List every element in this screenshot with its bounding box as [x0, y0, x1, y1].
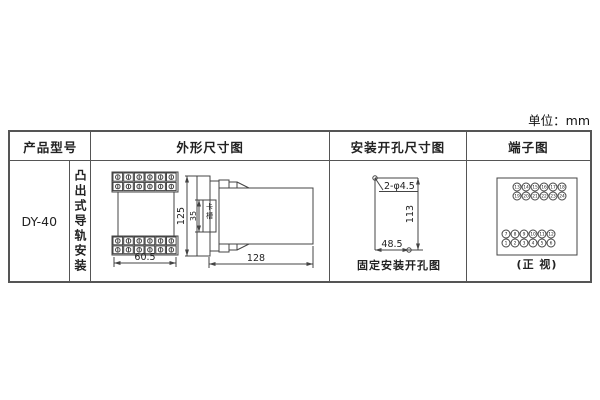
cell-terminal-diagram: 131415161718192021222324 789101112123456…	[467, 161, 590, 282]
mounting-type-text: 凸出式导轨安装	[70, 169, 90, 274]
header-terminal: 端子图	[467, 132, 590, 160]
cell-install-drawing: 2-φ4.5 113 48.5 固定安装开孔图	[330, 161, 467, 282]
cell-outline-drawing: 60.5 125 35 卡槽 128	[91, 161, 329, 282]
page: { "page": { "unit_label": "单位：mm" }, "ta…	[0, 0, 600, 400]
svg-text:1: 1	[504, 241, 507, 247]
dim-width-label: 60.5	[135, 252, 156, 263]
svg-text:22: 22	[541, 194, 547, 200]
svg-text:9: 9	[522, 232, 525, 238]
terminal-group-top: 131415161718192021222324	[513, 183, 566, 200]
svg-text:11: 11	[539, 232, 545, 238]
product-model-text: DY-40	[22, 214, 58, 229]
svg-text:8: 8	[513, 232, 516, 238]
terminal-caption: (正 视)	[516, 257, 557, 271]
svg-text:3: 3	[522, 241, 525, 247]
dim-slot-height-label: 35	[189, 211, 198, 221]
install-caption: 固定安装开孔图	[357, 258, 441, 272]
cell-mounting-type: 凸出式导轨安装	[70, 161, 92, 282]
svg-text:24: 24	[559, 194, 565, 200]
table-body-row: DY-40 凸出式导轨安装	[10, 161, 590, 282]
svg-text:16: 16	[541, 185, 547, 191]
header-product-model: 产品型号	[10, 132, 91, 160]
svg-text:4: 4	[531, 241, 534, 247]
svg-text:5: 5	[540, 241, 543, 247]
table-header-row: 产品型号 外形尺寸图 安装开孔尺寸图 端子图	[10, 132, 590, 161]
terminal-screws-top	[113, 173, 176, 191]
svg-text:2: 2	[513, 241, 516, 247]
dim-hole-width-label: 48.5	[381, 239, 402, 250]
header-outline: 外形尺寸图	[91, 132, 329, 160]
dim-height-label: 125	[176, 207, 187, 225]
svg-text:7: 7	[504, 232, 507, 238]
unit-label: 单位：mm	[528, 110, 590, 129]
header-install: 安装开孔尺寸图	[330, 132, 467, 160]
svg-text:19: 19	[514, 194, 520, 200]
svg-text:10: 10	[530, 232, 536, 238]
hole-spec-label: 2-φ4.5	[384, 181, 415, 192]
install-drawing: 2-φ4.5 113 48.5 固定安装开孔图	[330, 161, 466, 282]
svg-text:12: 12	[548, 232, 554, 238]
outline-drawing: 60.5 125 35 卡槽 128	[91, 161, 329, 282]
svg-text:17: 17	[550, 185, 556, 191]
svg-text:14: 14	[523, 185, 529, 191]
svg-text:18: 18	[559, 185, 565, 191]
dim-hole-height-label: 113	[405, 205, 416, 223]
svg-text:21: 21	[532, 194, 538, 200]
svg-text:20: 20	[523, 194, 529, 200]
svg-text:23: 23	[550, 194, 556, 200]
terminal-diagram: 131415161718192021222324 789101112123456…	[467, 161, 589, 282]
cell-product-model: DY-40	[10, 161, 70, 282]
terminal-group-bottom: 789101112123456	[502, 230, 555, 247]
svg-text:15: 15	[532, 185, 538, 191]
svg-text:13: 13	[514, 185, 520, 191]
dim-depth-label: 128	[247, 253, 265, 264]
spec-table: 产品型号 外形尺寸图 安装开孔尺寸图 端子图 DY-40 凸出式导轨安装	[8, 130, 592, 283]
svg-text:6: 6	[549, 241, 552, 247]
